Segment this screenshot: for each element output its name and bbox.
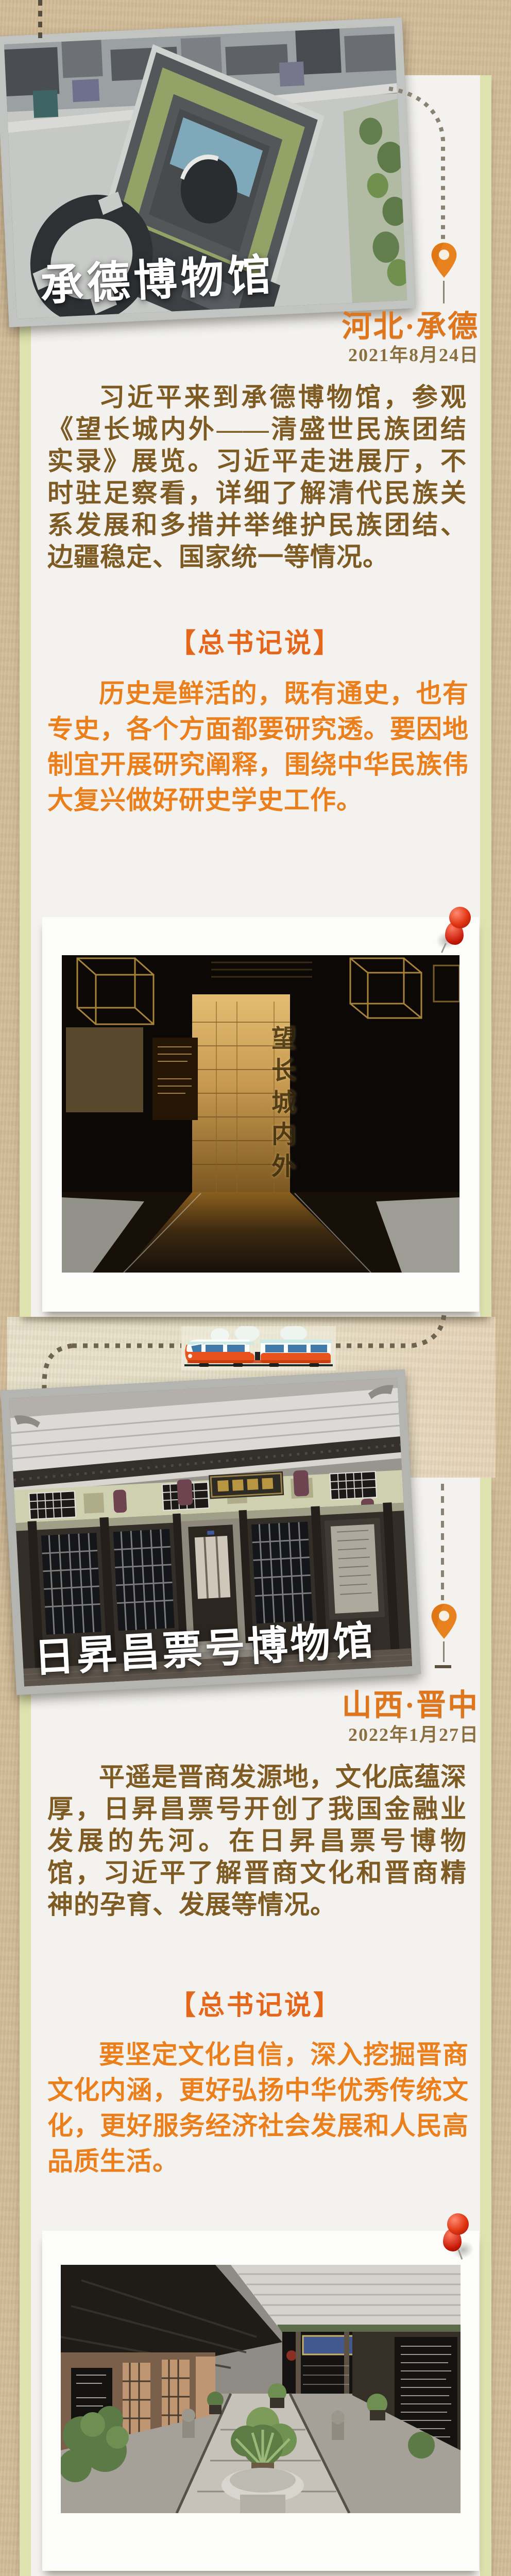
location-label: 山西·晋中 bbox=[342, 1681, 479, 1724]
pushpin-icon bbox=[437, 2214, 474, 2260]
quote-heading: 【总书记说】 bbox=[0, 1984, 511, 2022]
location-label: 河北·承德 bbox=[342, 302, 479, 345]
train-icon bbox=[181, 1326, 336, 1370]
location-pin-icon bbox=[430, 1603, 458, 1639]
infographic-page: 承德博物馆 河北·承德 2021年8月24日 习近平来到承德博物馆，参观《望长城… bbox=[0, 0, 511, 2576]
dashed-route bbox=[443, 281, 445, 303]
courtyard-photo-art bbox=[61, 2265, 461, 2513]
dashed-route bbox=[443, 1641, 445, 1662]
exhibition-hall-art bbox=[62, 955, 459, 1273]
museum-title: 承德博物馆 bbox=[39, 240, 276, 313]
dashed-route bbox=[435, 1665, 451, 1668]
leader-quote: 历史是鲜活的，既有通史，也有专史，各个方面都要研究透。要因地制宜开展研究阐释，围… bbox=[47, 676, 469, 818]
section-paragraph: 平遥是晋商发源地，文化底蕴深厚，日昇昌票号开创了我国金融业发展的先河。在日昇昌票… bbox=[47, 1761, 467, 1921]
quote-heading: 【总书记说】 bbox=[0, 621, 511, 660]
dashed-route bbox=[441, 1484, 444, 1600]
photo-exhibition-hall: 望长城内外 bbox=[42, 917, 479, 1312]
leader-quote: 要坚定文化自信，深入挖掘晋商文化内涵，更好弘扬中华优秀传统文化，更好服务经济社会… bbox=[47, 2037, 469, 2179]
exhibit-wall-text: 望长城内外 bbox=[263, 1025, 299, 1195]
dashed-route bbox=[381, 77, 453, 247]
photo-rishengchang-facade: 日昇昌票号博物馆 bbox=[1, 1369, 421, 1695]
photo-rishengchang-courtyard bbox=[42, 2231, 479, 2571]
photo-chengde-museum-aerial: 承德博物馆 bbox=[0, 18, 416, 328]
pushpin-icon bbox=[439, 908, 476, 953]
visit-date: 2021年8月24日 bbox=[348, 340, 479, 367]
location-pin-icon bbox=[430, 242, 458, 278]
visit-date: 2022年1月27日 bbox=[348, 1720, 479, 1747]
section-paragraph: 习近平来到承德博物馆，参观《望长城内外——清盛世民族团结实录》展览。习近平走进展… bbox=[47, 381, 467, 573]
dashed-route bbox=[38, 0, 42, 40]
